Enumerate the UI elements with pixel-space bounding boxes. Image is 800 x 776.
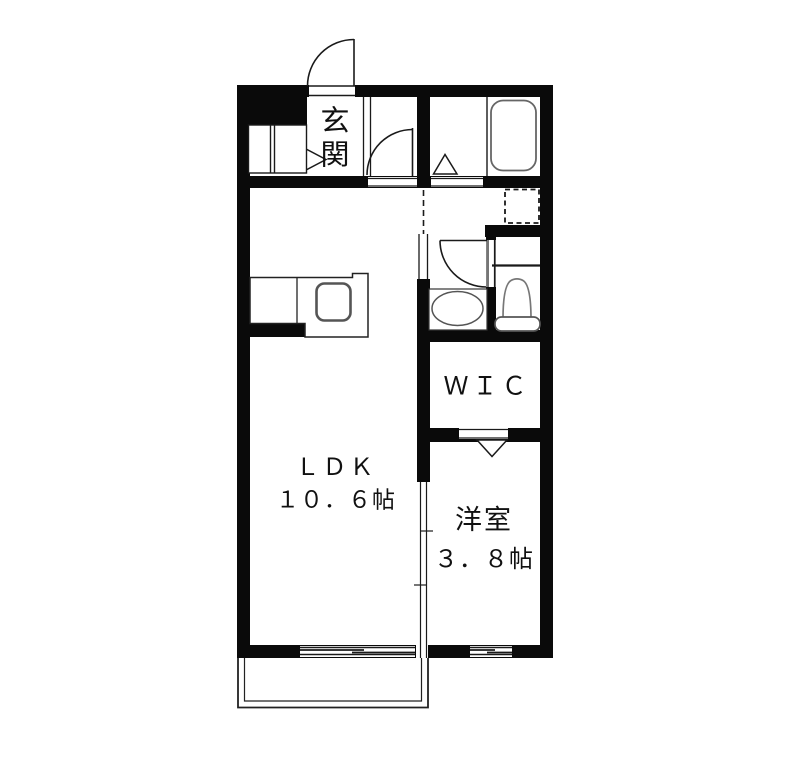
floor-plan: 玄関 ＬＤＫ １０．６帖 ＷＩＣ 洋室 ３．８帖	[0, 0, 800, 776]
western-room-label: 洋室	[455, 506, 513, 536]
plan-background	[0, 0, 800, 776]
washbasin-icon	[429, 289, 487, 330]
ldk-area-label: １０．６帖	[276, 488, 396, 513]
wic-label: ＷＩＣ	[443, 372, 530, 400]
western-room-area-label: ３．８帖	[434, 546, 534, 572]
shoe-cabinet-icon	[249, 125, 307, 173]
wall-kitchen-stub	[245, 324, 305, 337]
wall-toilet-top	[485, 225, 553, 237]
floor-plan-drawing	[0, 0, 800, 776]
bathtub-icon	[491, 101, 536, 171]
windows	[300, 646, 512, 657]
kitchen-sink-icon	[317, 284, 351, 321]
wall-hall-bath-divider	[417, 85, 430, 188]
wall-right	[540, 85, 553, 658]
ldk-label: ＬＤＫ	[296, 454, 377, 480]
entrance-label: 玄関	[316, 105, 348, 173]
ldk-window	[300, 646, 415, 657]
wall-wic-left	[417, 342, 430, 482]
western-window	[470, 646, 512, 657]
wall-entrance-block	[237, 85, 307, 125]
